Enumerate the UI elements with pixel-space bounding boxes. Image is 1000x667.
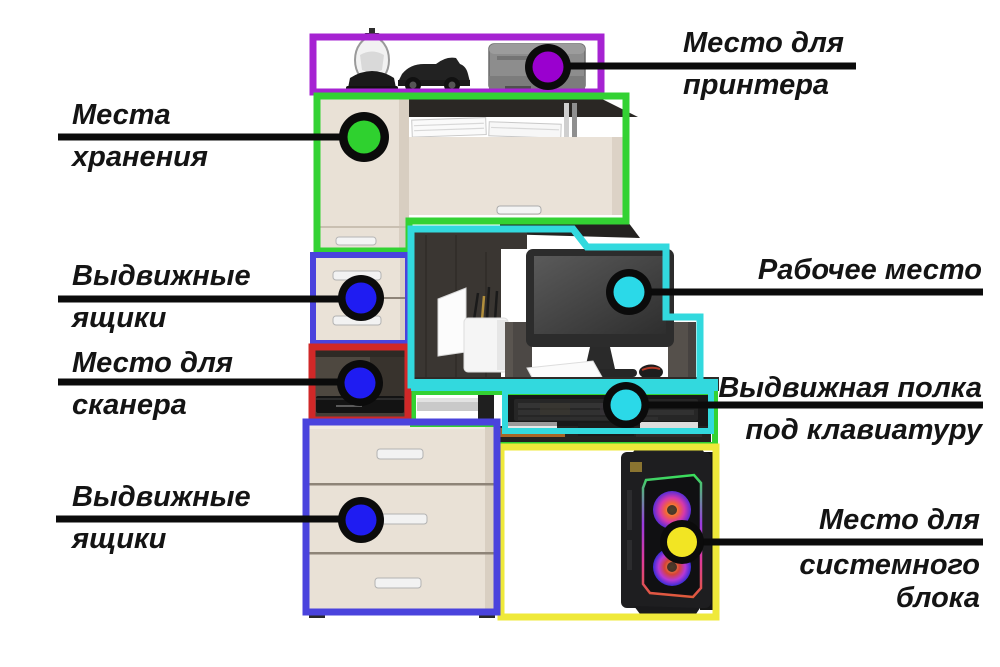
label-storage-line2: хранения: [72, 136, 208, 178]
monitor: [526, 249, 674, 377]
label-drawers-top-line2: ящики: [72, 297, 251, 339]
label-printer-line1: Место для: [683, 22, 844, 64]
label-storage-line1: Места: [72, 94, 208, 136]
label-system-line3: блока: [799, 582, 980, 615]
label-drawers-top-line1: Выдвижные: [72, 255, 251, 297]
marker-scanner: [337, 360, 383, 406]
label-storage: Места хранения: [72, 94, 208, 178]
marker-system-unit: [660, 520, 704, 564]
marker-workspace: [606, 269, 652, 315]
marker-drawers-bottom: [338, 497, 384, 543]
label-system-line2: системного: [799, 549, 980, 582]
drawer-handle: [375, 578, 421, 588]
label-scanner: Место для сканера: [72, 342, 233, 426]
letter-holder: [438, 288, 466, 356]
label-keyboard-line1: Выдвижная полка: [718, 367, 982, 409]
label-keyboard-shelf: Выдвижная полка под клавиатуру: [718, 367, 982, 451]
label-drawers-top: Выдвижные ящики: [72, 255, 251, 339]
toy-car-decor-icon: [398, 58, 470, 93]
label-keyboard-line2: под клавиатуру: [718, 409, 982, 451]
label-drawers-bottom: Выдвижные ящики: [72, 476, 251, 560]
label-workspace: Рабочее место: [758, 249, 982, 291]
marker-storage: [339, 112, 389, 162]
drawer-handle: [381, 514, 427, 524]
label-scanner-line2: сканера: [72, 384, 233, 426]
paper-stack: [412, 118, 487, 138]
paper-stack: [489, 122, 561, 139]
marker-printer: [525, 44, 571, 90]
label-drawers-bottom-line1: Выдвижные: [72, 476, 251, 518]
drawer-handle: [377, 449, 423, 459]
label-workspace-line1: Рабочее место: [758, 249, 982, 291]
label-drawers-bottom-line2: ящики: [72, 518, 251, 560]
marker-keyboard: [603, 382, 649, 428]
label-system-line1: Место для: [799, 504, 980, 537]
label-printer: Место для принтера: [683, 22, 844, 106]
marker-drawers-top: [338, 275, 384, 321]
label-scanner-line1: Место для: [72, 342, 233, 384]
diagram-canvas: Место для принтера Места хранения Выдвиж…: [0, 0, 1000, 667]
label-printer-line2: принтера: [683, 64, 844, 106]
workspace-area: [411, 230, 719, 391]
label-system-unit: Место для системного блока: [799, 504, 980, 615]
